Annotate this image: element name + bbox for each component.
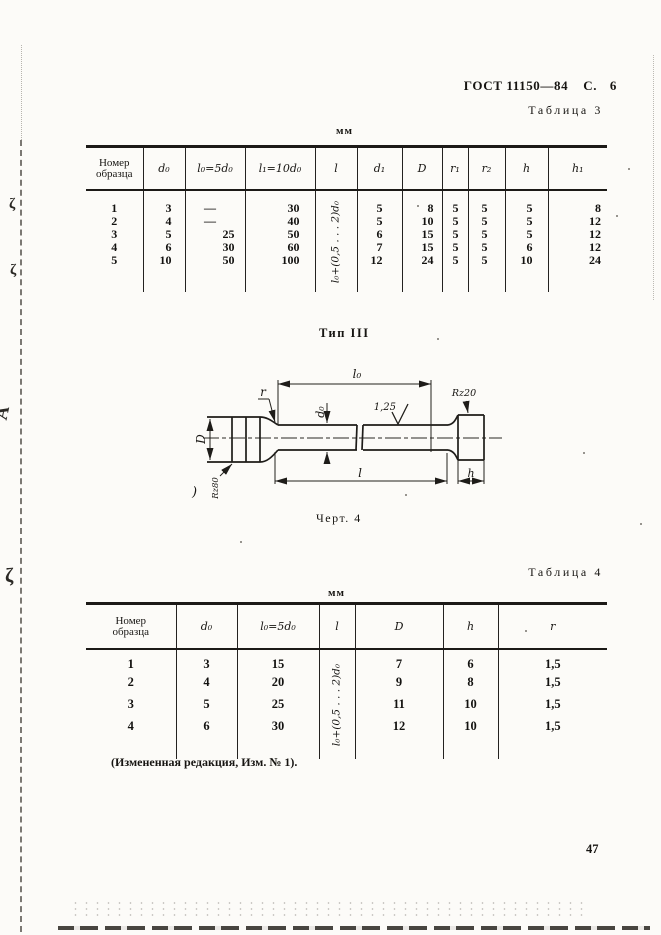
cell: 3 [143, 190, 185, 215]
column-header: r₁ [442, 147, 468, 191]
amendment-note: (Измененная редакция, Изм. № 1). [111, 755, 297, 770]
noise-dot [628, 168, 630, 170]
cell: 5 [143, 228, 185, 241]
column-header: r [498, 604, 607, 650]
cell: 5 [357, 190, 402, 215]
figure-caption: Черт. 4 [316, 511, 362, 526]
column-header: d₀ [176, 604, 237, 650]
roughness-rz80: Rz80 [211, 477, 221, 500]
dim-label-r: r [260, 385, 267, 399]
table-4-unit: мм [328, 587, 345, 599]
cell: 25 [185, 228, 245, 241]
noise-dot [417, 205, 419, 207]
scan-mark: A [0, 404, 15, 422]
document-header: ГОСТ 11150—84 С. 6 [464, 78, 617, 94]
table-row: 1 3 — 30 l₀+(0,5 . . . 2)d₀ 5 8 5 5 5 8 [86, 190, 607, 215]
dim-label-l: l [358, 466, 362, 480]
cell: 30 [185, 241, 245, 254]
noise-dot [525, 630, 527, 632]
cell: 50 [245, 228, 315, 241]
cell: 15 [237, 649, 319, 671]
right-margin-dotted-line [653, 55, 654, 300]
scan-mark: ζ [10, 262, 16, 279]
table-3-unit: мм [336, 125, 353, 137]
page-number: 47 [586, 842, 599, 857]
sheet-label: С. 6 [583, 78, 617, 94]
cell: 50 [185, 254, 245, 267]
table-3: Номер образца d₀ l₀=5d₀ l₁=10d₀ l d₁ D r… [86, 145, 607, 292]
cell: 40 [245, 215, 315, 228]
roughness-value: 1,25 [374, 402, 396, 413]
cell: 6 [176, 715, 237, 737]
formula-cell: l₀+(0,5 . . . 2)d₀ [315, 190, 357, 292]
cell: 60 [245, 241, 315, 254]
column-header: d₁ [357, 147, 402, 191]
cell: 3 [176, 649, 237, 671]
roughness-rz20: Rz20 [451, 388, 476, 399]
cell: 100 [245, 254, 315, 267]
dim-label-D: D [194, 434, 208, 445]
table-4-caption: Таблица 4 [528, 565, 603, 580]
noise-dot [583, 452, 585, 454]
cell: 9 [355, 671, 443, 693]
dim-label-l0: l₀ [353, 367, 362, 381]
column-header: l₀=5d₀ [185, 147, 245, 191]
column-header: D [402, 147, 442, 191]
column-header: d₀ [143, 147, 185, 191]
column-header: Номер образца [86, 147, 143, 191]
column-header: Номер образца [86, 604, 176, 650]
cell: 1,5 [498, 693, 607, 715]
rotated-formula: l₀+(0,5 . . . 2)d₀ [330, 200, 343, 282]
cell: 7 [355, 649, 443, 671]
cell: 4 [176, 671, 237, 693]
cell: — [185, 215, 245, 228]
cell: 12 [357, 254, 402, 267]
dim-label-h: h [467, 467, 474, 480]
column-header: l [315, 147, 357, 191]
table-3-header-row: Номер образца d₀ l₀=5d₀ l₁=10d₀ l d₁ D r… [86, 147, 607, 191]
column-header: h₁ [548, 147, 607, 191]
cell: 30 [245, 190, 315, 215]
column-header: h [505, 147, 548, 191]
cell: 6 [443, 649, 498, 671]
dim-label-d0: d₀ [314, 406, 327, 418]
scan-edge-artifact [58, 926, 650, 930]
table-4: Номер образца d₀ l₀=5d₀ l D h r 1 3 15 l… [86, 602, 607, 759]
noise-dot [405, 494, 407, 496]
column-header: l [319, 604, 355, 650]
table-row: 1 3 15 l₀+(0,5 . . . 2)d₀ 7 6 1,5 [86, 649, 607, 671]
cell: 5 [442, 190, 468, 215]
cell: 5 [468, 190, 505, 215]
cell: 1 [86, 190, 143, 215]
cell: 5 [442, 254, 468, 267]
cell: 1 [86, 649, 176, 671]
column-header: r₂ [468, 147, 505, 191]
left-margin-dotted-line [21, 45, 22, 140]
cell: 8 [402, 190, 442, 215]
cell: 4 [143, 215, 185, 228]
noise-dot [616, 215, 618, 217]
cell: 5 [176, 693, 237, 715]
cell: 11 [355, 693, 443, 715]
column-header: l₁=10d₀ [245, 147, 315, 191]
column-header-label: Номер образца [89, 158, 139, 180]
left-margin-dashed-line [20, 140, 22, 932]
specimen-drawing: l₀ r d₀ 1,25 Rz20 D l h Rz80 ) [170, 350, 510, 515]
formula-cell: l₀+(0,5 . . . 2)d₀ [319, 649, 355, 759]
scan-mark: ζ [9, 196, 15, 213]
dimension-lines [210, 380, 484, 484]
column-header: D [355, 604, 443, 650]
cell: — [185, 190, 245, 215]
standard-number: ГОСТ 11150—84 [464, 78, 568, 94]
cell: 25 [237, 693, 319, 715]
cell: 30 [237, 715, 319, 737]
cell: 24 [548, 254, 607, 267]
column-header: h [443, 604, 498, 650]
noise-dot [240, 541, 242, 543]
cell: 12 [355, 715, 443, 737]
document-page: ζ ζ A ζ ГОСТ 11150—84 С. 6 Таблица 3 мм … [0, 0, 661, 935]
cell: 8 [548, 190, 607, 215]
column-header: l₀=5d₀ [237, 604, 319, 650]
cell: 2 [86, 671, 176, 693]
cell: 1,5 [498, 649, 607, 671]
rotated-formula: l₀+(0,5 . . . 2)d₀ [331, 663, 344, 745]
scan-noise [70, 900, 590, 916]
cell: 4 [86, 715, 176, 737]
cell: 10 [443, 715, 498, 737]
cell: 8 [443, 671, 498, 693]
figure-type-label: Тип III [319, 326, 370, 341]
cell: 24 [402, 254, 442, 267]
cell: 3 [86, 693, 176, 715]
cell: 1,5 [498, 715, 607, 737]
table-4-header-row: Номер образца d₀ l₀=5d₀ l D h r [86, 604, 607, 650]
noise-dot [437, 338, 439, 340]
cell: 10 [143, 254, 185, 267]
cell: 1,5 [498, 671, 607, 693]
cell: 5 [468, 254, 505, 267]
cell: 5 [505, 190, 548, 215]
cell: 10 [505, 254, 548, 267]
scan-mark: ζ [5, 565, 13, 588]
scan-mark: ) [191, 485, 197, 500]
noise-dot [640, 523, 642, 525]
cell: 5 [86, 254, 143, 267]
column-header-label: Номер образца [106, 616, 156, 638]
cell: 10 [443, 693, 498, 715]
table-3-caption: Таблица 3 [528, 103, 603, 118]
cell: 20 [237, 671, 319, 693]
